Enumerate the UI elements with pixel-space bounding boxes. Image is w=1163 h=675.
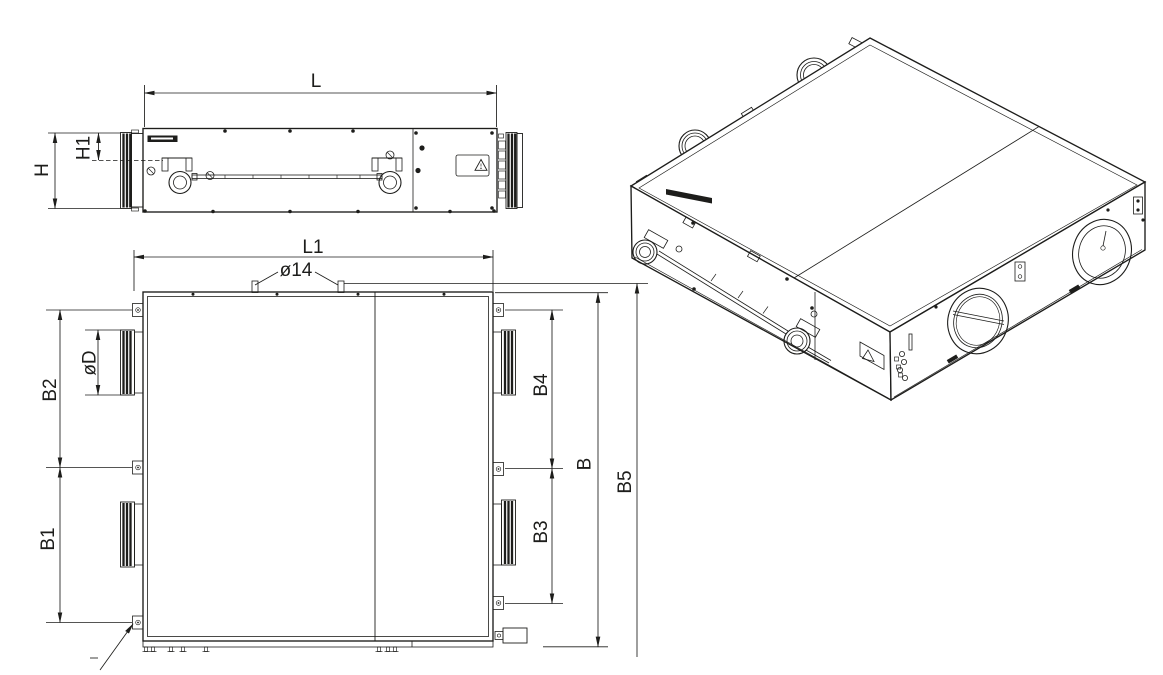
- dimension-dia14: ø14: [255, 260, 338, 285]
- drawing-canvas: L H H1: [0, 0, 1163, 675]
- dim-label-H1: H1: [74, 136, 95, 160]
- bottom-clips: [143, 647, 399, 652]
- side-unit-body: [143, 129, 497, 213]
- dimension-B1: B1: [38, 468, 60, 623]
- dimension-B4: B4: [531, 310, 552, 469]
- technical-drawing: L H H1: [0, 0, 1163, 675]
- bracket-pointer-arrow: [90, 624, 133, 670]
- duct-spigot-right-lower: [493, 500, 516, 565]
- dimension-diaD: øD: [80, 330, 135, 395]
- dimension-B2: B2: [40, 310, 61, 468]
- electrical-box: [495, 628, 527, 643]
- dimension-B3: B3: [531, 469, 552, 604]
- dimension-L: L: [145, 71, 497, 127]
- dim-label-B: B: [575, 458, 596, 471]
- dim-label-B2: B2: [40, 378, 61, 401]
- dim-label-B4: B4: [531, 373, 552, 397]
- service-rail: [192, 174, 382, 181]
- dim-label-B3: B3: [531, 520, 552, 543]
- dim-label-dia14: ø14: [280, 260, 313, 281]
- duct-spigot-right-upper: [493, 330, 516, 395]
- side-view: L H H1: [32, 71, 523, 213]
- dim-label-L1: L1: [302, 237, 323, 258]
- plan-view: L1 ø14: [38, 237, 648, 670]
- bottom-rail: [143, 641, 494, 652]
- dim-label-B5: B5: [615, 470, 636, 493]
- filter-knob-left: [162, 158, 192, 194]
- dimension-B5: B5: [615, 284, 637, 658]
- plan-unit-body: [143, 292, 493, 641]
- dim-label-B1: B1: [38, 527, 59, 550]
- duct-spigot-left-upper: [121, 330, 144, 395]
- rivet-dots: [143, 129, 496, 213]
- dim-label-L: L: [311, 71, 322, 92]
- duct-flange-left: [121, 130, 144, 211]
- dimension-L1: L1: [134, 237, 493, 291]
- hanger-tab: [252, 281, 258, 293]
- brand-label: [148, 136, 178, 143]
- filter-knob-right: [372, 158, 402, 194]
- warning-label: [456, 155, 489, 176]
- dimension-B: B: [543, 293, 608, 647]
- rivet-dots: [192, 293, 446, 296]
- duct-spigot-left-lower: [121, 502, 144, 567]
- hanger-tab: [338, 281, 344, 293]
- duct-flange-right: [499, 133, 523, 209]
- dim-label-diaD: øD: [80, 350, 101, 375]
- plan-inner-wall: [148, 297, 489, 637]
- isometric-view: [631, 38, 1145, 400]
- dim-label-H: H: [32, 163, 53, 177]
